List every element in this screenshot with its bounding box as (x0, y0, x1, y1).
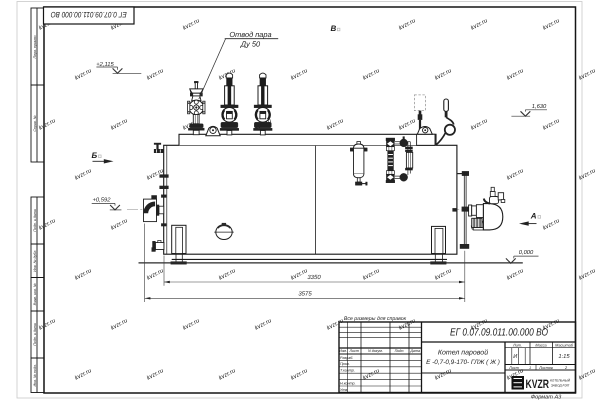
svg-text:Котел паровой: Котел паровой (438, 349, 488, 357)
svg-text:Изм.: Изм. (339, 349, 347, 353)
svg-text:Подп. и дата: Подп. и дата (33, 323, 37, 346)
svg-text:Отвод пара: Отвод пара (229, 30, 271, 39)
svg-text:И: И (513, 354, 517, 360)
svg-text:Все размеры для справок: Все размеры для справок (344, 316, 407, 322)
svg-text:Дата: Дата (409, 349, 420, 353)
svg-text:Взам. инв. №: Взам. инв. № (33, 283, 37, 305)
svg-text:Т.контр.: Т.контр. (340, 369, 355, 373)
svg-text:Справ. №: Справ. № (33, 115, 37, 131)
svg-text:Перв. примен.: Перв. примен. (33, 35, 37, 59)
svg-text:ЕГ 0.07.09.011.00.000 ВО: ЕГ 0.07.09.011.00.000 ВО (450, 328, 548, 339)
svg-text:+0,592: +0,592 (93, 197, 112, 204)
svg-text:Лит.: Лит. (512, 343, 522, 347)
svg-text:1:15: 1:15 (558, 354, 570, 360)
svg-text:Инв. № дубл.: Инв. № дубл. (33, 250, 37, 272)
svg-text:Листов: Листов (538, 366, 553, 370)
svg-text:Разраб.: Разраб. (340, 356, 353, 360)
svg-text:Пров.: Пров. (340, 362, 350, 366)
svg-text:Инв. № подл.: Инв. № подл. (33, 364, 37, 386)
svg-text:3350: 3350 (307, 274, 321, 281)
svg-text:0,000: 0,000 (519, 249, 534, 256)
svg-text:Утв.: Утв. (340, 388, 348, 392)
svg-text:Ду 50: Ду 50 (240, 39, 261, 48)
svg-text:3575: 3575 (298, 291, 312, 298)
svg-text:Масса: Масса (535, 343, 546, 347)
svg-text:В: В (331, 24, 337, 33)
svg-text:Масштаб: Масштаб (555, 343, 574, 347)
svg-text:N докум.: N докум. (368, 349, 383, 353)
svg-text:Н.контр.: Н.контр. (340, 381, 356, 385)
svg-text:1,630: 1,630 (532, 103, 547, 110)
svg-text:Лист: Лист (348, 349, 359, 353)
svg-text:КОТЕЛЬНЫЙ: КОТЕЛЬНЫЙ (550, 379, 571, 383)
svg-text:KVZR: KVZR (526, 377, 550, 391)
svg-text:Формат А3: Формат А3 (531, 395, 562, 400)
svg-text:А: А (530, 212, 537, 221)
svg-text:Подп.: Подп. (395, 349, 405, 353)
svg-text:ЗАВОД РЭП: ЗАВОД РЭП (551, 384, 570, 388)
svg-text:Б: Б (92, 151, 98, 160)
svg-text:Подп. и дата: Подп. и дата (33, 209, 37, 232)
svg-text:Лист: Лист (508, 366, 519, 370)
svg-text:1: 1 (529, 366, 531, 370)
svg-text:Е -0,7-0,9-170- ГЛЖ ( Ж ): Е -0,7-0,9-170- ГЛЖ ( Ж ) (426, 359, 500, 366)
svg-text:ЕГ 0.07.09.011.00.000 ВО: ЕГ 0.07.09.011.00.000 ВО (51, 10, 127, 19)
